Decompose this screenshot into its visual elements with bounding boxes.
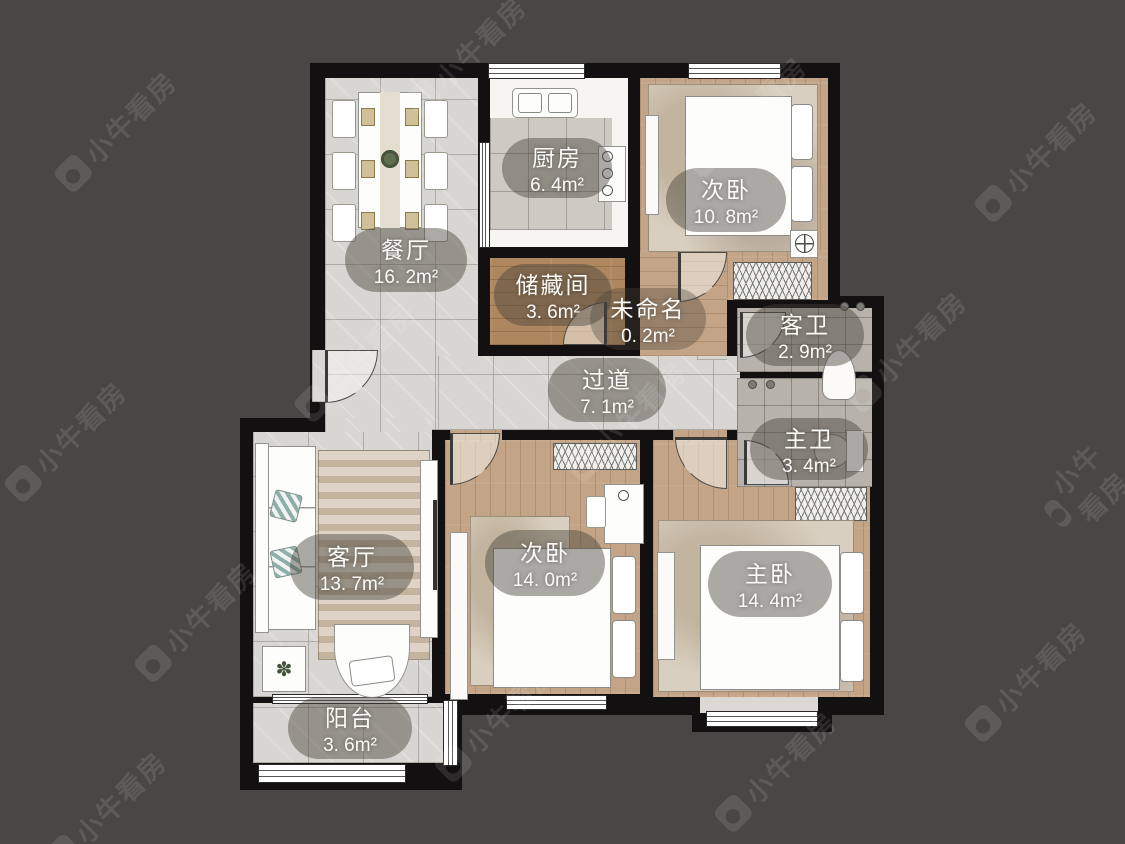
tv bbox=[433, 500, 437, 590]
pillow bbox=[840, 552, 864, 614]
desk-lamp-icon bbox=[618, 490, 629, 501]
cabinet bbox=[657, 552, 675, 660]
room-area: 10. 8m² bbox=[694, 207, 758, 229]
faucet-icon bbox=[748, 380, 757, 389]
sink-basin bbox=[518, 93, 542, 113]
pillow bbox=[612, 620, 636, 678]
place-setting bbox=[361, 160, 375, 178]
cabinet bbox=[450, 532, 468, 700]
room-area: 3. 6m² bbox=[323, 735, 377, 757]
wardrobe bbox=[733, 262, 812, 300]
room-label-bedroom2-bottom: 次卧 14. 0m² bbox=[485, 530, 605, 596]
room-label-balcony: 阳台 3. 6m² bbox=[288, 697, 412, 759]
place-setting bbox=[361, 108, 375, 126]
room-area: 14. 0m² bbox=[513, 570, 577, 592]
room-name: 厨房 bbox=[532, 139, 582, 173]
window bbox=[488, 63, 585, 79]
bay-window bbox=[706, 711, 818, 727]
room-label-master-bedroom: 主卧 14. 4m² bbox=[708, 551, 832, 617]
window bbox=[688, 63, 781, 79]
room-name: 餐厅 bbox=[381, 231, 431, 265]
ceiling-fixture-icon bbox=[795, 234, 814, 253]
kitchen-sliding-door bbox=[479, 142, 490, 248]
plant-icon: ✽ bbox=[276, 657, 293, 682]
room-area: 3. 6m² bbox=[526, 302, 580, 324]
room-label-guest-bath: 客卫 2. 9m² bbox=[746, 304, 864, 366]
dining-chair bbox=[332, 204, 356, 242]
faucet-icon bbox=[766, 380, 775, 389]
balcony-side-window bbox=[443, 700, 458, 766]
room-name: 未命名 bbox=[611, 290, 686, 324]
room-label-master-bath: 主卫 3. 4m² bbox=[750, 418, 868, 480]
place-setting bbox=[405, 108, 419, 126]
pillow bbox=[612, 556, 636, 614]
wardrobe bbox=[553, 443, 637, 470]
entry-floor bbox=[312, 350, 325, 402]
balcony-window bbox=[258, 764, 406, 783]
pillow bbox=[840, 620, 864, 682]
pillow bbox=[791, 166, 813, 222]
dining-chair bbox=[332, 100, 356, 138]
room-area: 16. 2m² bbox=[374, 267, 438, 289]
room-area: 2. 9m² bbox=[778, 342, 832, 364]
desk-chair bbox=[586, 496, 606, 528]
room-label-kitchen: 厨房 6. 4m² bbox=[502, 138, 612, 198]
room-name: 客卫 bbox=[780, 306, 830, 340]
room-label-unnamed: 未命名 0. 2m² bbox=[590, 288, 706, 350]
room-area: 3. 4m² bbox=[782, 456, 836, 478]
wardrobe bbox=[795, 487, 867, 521]
dining-chair bbox=[424, 100, 448, 138]
cabinet bbox=[645, 115, 659, 215]
faucet-icon bbox=[856, 302, 865, 311]
window bbox=[506, 695, 607, 710]
floorplan-canvas: ✽ 餐厅 16. 2m² 厨房 6. 4m² 次卧 10. 8m² bbox=[0, 0, 1125, 844]
room-area: 0. 2m² bbox=[621, 326, 675, 348]
plant-table: ✽ bbox=[262, 646, 306, 692]
room-label-hallway: 过道 7. 1m² bbox=[548, 358, 666, 422]
dining-chair bbox=[332, 152, 356, 190]
room-name: 次卧 bbox=[520, 534, 570, 568]
room-area: 14. 4m² bbox=[738, 591, 802, 613]
room-label-living: 客厅 13. 7m² bbox=[290, 534, 414, 600]
room-area: 13. 7m² bbox=[320, 574, 384, 596]
floorplan: ✽ 餐厅 16. 2m² 厨房 6. 4m² 次卧 10. 8m² bbox=[0, 0, 1125, 844]
place-setting bbox=[405, 160, 419, 178]
room-name: 阳台 bbox=[325, 699, 375, 733]
room-name: 储藏间 bbox=[516, 266, 591, 300]
centerpiece bbox=[381, 150, 399, 168]
room-name: 过道 bbox=[582, 361, 632, 395]
room-label-bedroom2-top: 次卧 10. 8m² bbox=[666, 168, 786, 232]
room-label-dining: 餐厅 16. 2m² bbox=[345, 228, 467, 292]
room-area: 7. 1m² bbox=[580, 397, 634, 419]
room-name: 次卧 bbox=[701, 171, 751, 205]
sink-basin bbox=[548, 93, 572, 113]
room-name: 主卫 bbox=[784, 420, 834, 454]
room-area: 6. 4m² bbox=[530, 175, 584, 197]
dining-chair bbox=[424, 152, 448, 190]
room-name: 客厅 bbox=[327, 538, 377, 572]
pillow bbox=[791, 104, 813, 160]
sofa-back bbox=[255, 443, 269, 633]
room-name: 主卧 bbox=[745, 555, 795, 589]
